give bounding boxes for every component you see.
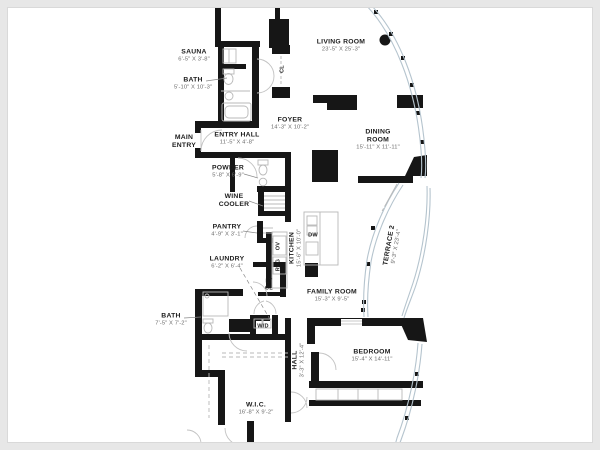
room-label-kitchen: KITCHEN 15'-6" X 10'-0" <box>289 229 304 267</box>
bedroom-door-arc <box>319 353 336 370</box>
room-label-foyer: FOYER 14'-3" X 10'-2" <box>271 117 309 132</box>
room-label-powder: POWDER 5'-8" X 6'-9" <box>212 165 244 180</box>
label-oven: OV <box>276 242 283 251</box>
lower-toilet-icon <box>203 319 213 333</box>
room-label-wic: W.I.C. 16'-8" X 9'-2" <box>239 402 274 417</box>
room-label-dining-room: DINING ROOM 15'-11" X 11'-11" <box>355 129 401 152</box>
wd-door-arc <box>254 301 264 314</box>
room-label-top-room: 10'-0" X 12'-8" <box>238 0 276 6</box>
label-washer-dryer: W/D <box>257 324 269 331</box>
floorplan-page: 10'-0" X 12'-8" LIVING ROOM 23'-5" X 25'… <box>0 0 600 450</box>
room-label-pantry: PANTRY 4'-9" X 3'-1" <box>211 224 242 239</box>
room-label-family-room: FAMILY ROOM 15'-3" X 9'-5" <box>307 289 357 304</box>
sauna-bench-icon <box>223 49 236 63</box>
primary-closet-row <box>316 389 402 400</box>
label-dishwasher: DW <box>308 233 318 240</box>
foyer-door-arc <box>257 59 274 76</box>
wic-door-arc <box>225 428 243 446</box>
bedroom-window <box>341 319 362 326</box>
closet-door-arc <box>187 430 201 444</box>
room-label-wine-cooler: WINE COOLER <box>213 193 255 209</box>
island-sink-icon <box>307 216 317 225</box>
powder-toilet-icon <box>258 160 268 175</box>
powder-sink-icon <box>259 178 267 186</box>
floorplan-drawing <box>0 0 600 450</box>
room-label-main-entry: MAIN ENTRY <box>167 134 201 150</box>
toilet-icon <box>223 69 234 85</box>
wine-rack-icon <box>264 196 285 208</box>
room-label-bath-upper: BATH 5'-10" X 10'-3" <box>174 77 212 92</box>
sink-icon <box>225 92 233 100</box>
label-fridge: RFG <box>276 259 283 272</box>
room-label-cl: CL <box>280 65 287 73</box>
room-label-entry-hall: ENTRY HALL 11'-5" X 4'-8" <box>214 132 259 147</box>
room-label-bedroom: BEDROOM 15'-4" X 14'-11" <box>351 349 392 364</box>
room-label-bath-lower: BATH 7'-5" X 7'-2" <box>155 313 186 328</box>
room-label-hall: HALL 3'-3" X 12'-4" <box>292 343 307 378</box>
room-label-living-room: LIVING ROOM 23'-5" X 25'-3" <box>317 39 365 54</box>
label-linen-closet: LT CL <box>262 278 276 291</box>
room-label-primary: PRIMARY <box>327 443 360 450</box>
room-label-sauna: SAUNA 6'-5" X 3'-8" <box>178 49 209 64</box>
dishwasher-icon <box>306 242 318 255</box>
room-label-laundry: LAUNDRY 6'-2" X 6'-4" <box>210 256 245 271</box>
